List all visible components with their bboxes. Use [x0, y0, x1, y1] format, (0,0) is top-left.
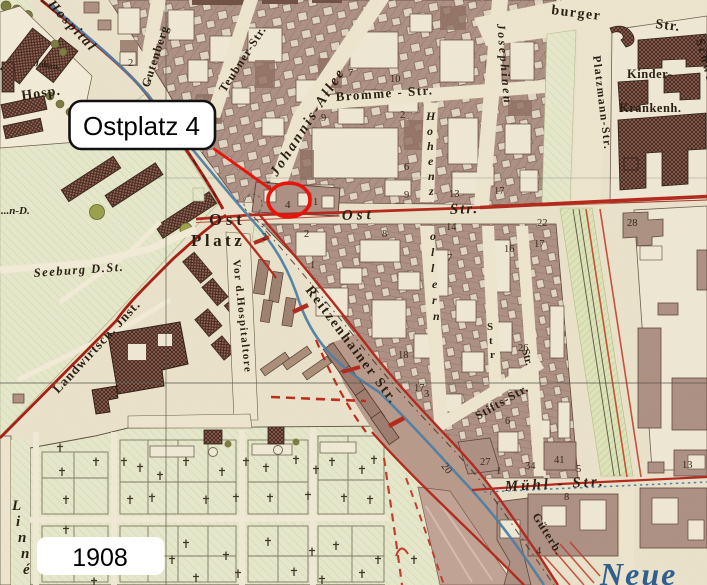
svg-text:1908: 1908	[72, 544, 128, 572]
svg-text:Ostplatz 4: Ostplatz 4	[83, 111, 200, 141]
